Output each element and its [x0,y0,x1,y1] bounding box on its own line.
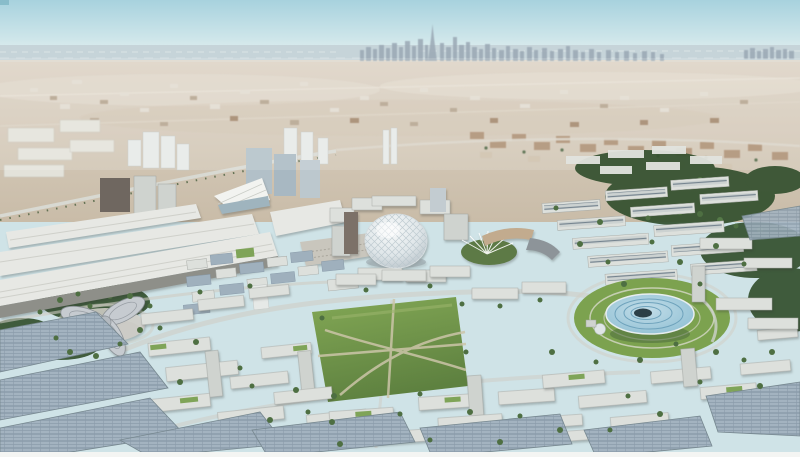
bottom-frame-strip [0,452,800,457]
al-wasl-dome [365,214,427,268]
central-park [312,297,468,402]
expo-city-aerial-rendering [0,0,800,457]
frame-corner-artifact [0,0,9,5]
sustainability-pavilion-disc [574,278,730,358]
